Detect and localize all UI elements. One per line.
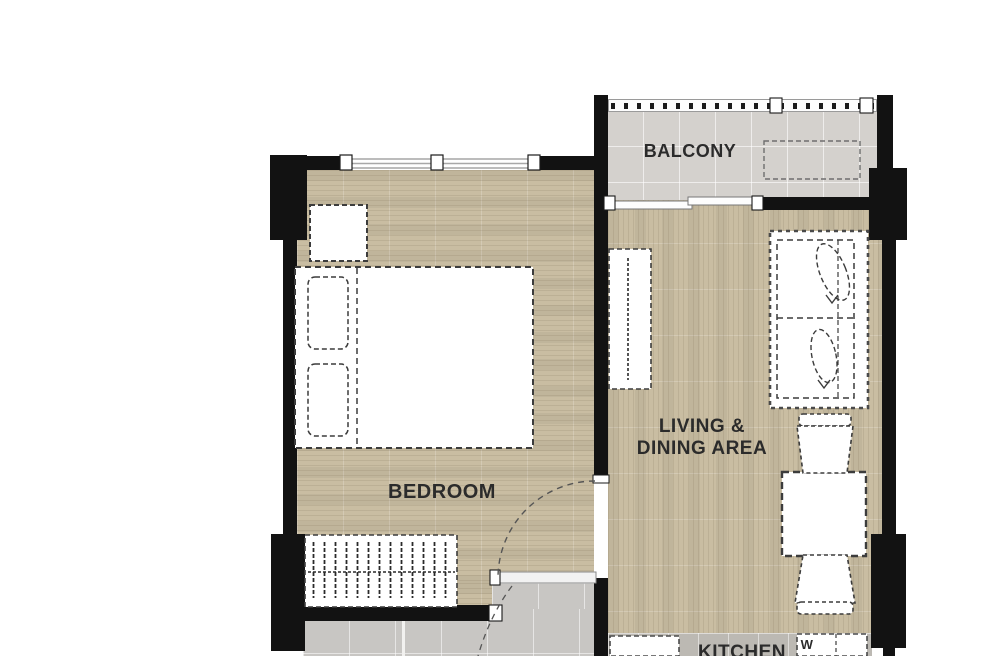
wall-balcony-bottom <box>760 197 870 210</box>
column-right-lower <box>871 534 906 648</box>
bathroom-doorway-floor <box>492 583 594 609</box>
wall-balcony-right <box>877 95 893 170</box>
bedroom-label: BEDROOM <box>388 481 496 504</box>
balcony-label: BALCONY <box>644 141 737 162</box>
living-floor <box>608 197 882 633</box>
bedroom-window-icon <box>340 155 540 170</box>
column-right-upper <box>869 168 907 240</box>
wall-right-bottom-stub <box>883 648 895 656</box>
balcony-railing-bars <box>611 103 874 109</box>
bedroom-floor <box>297 170 594 583</box>
wall-left <box>283 238 297 534</box>
balcony-railing <box>608 99 877 112</box>
kitchen-label: KITCHEN <box>698 642 786 656</box>
bedroom-floor-lower <box>297 583 492 607</box>
living-dining-label: LIVING & DINING AREA <box>637 416 767 460</box>
wall-center-vertical <box>594 95 608 483</box>
wall-right <box>882 238 896 534</box>
wall-bedroom-top-left <box>270 156 342 170</box>
living-dining-label-line2: DINING AREA <box>637 438 767 460</box>
wall-bedroom-bottom <box>297 605 492 621</box>
living-dining-label-line1: LIVING & <box>637 416 767 438</box>
washer-label: W <box>801 637 814 652</box>
wall-center-vertical-lower <box>594 578 608 656</box>
floor-plan: BALCONY BEDROOM LIVING & DINING AREA KIT… <box>0 0 1000 656</box>
wall-left-lower-block <box>271 534 305 651</box>
